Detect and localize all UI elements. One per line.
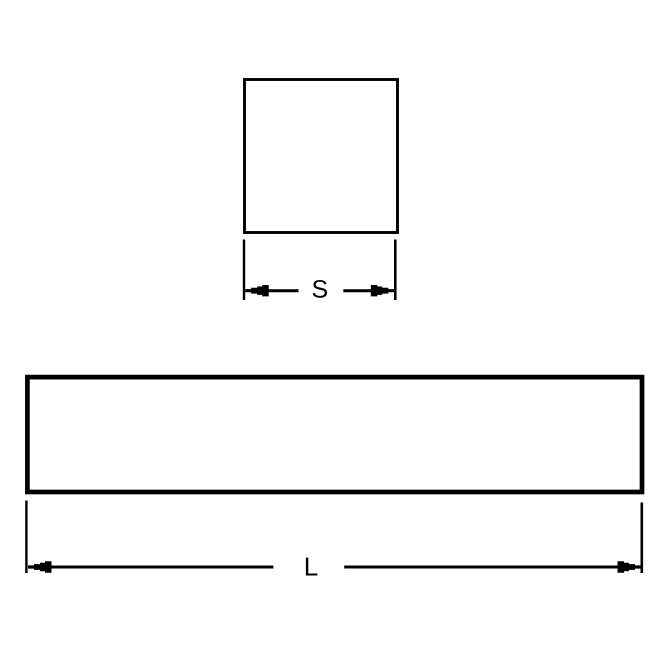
svg-text:L: L <box>304 552 318 582</box>
svg-text:S: S <box>312 276 329 304</box>
